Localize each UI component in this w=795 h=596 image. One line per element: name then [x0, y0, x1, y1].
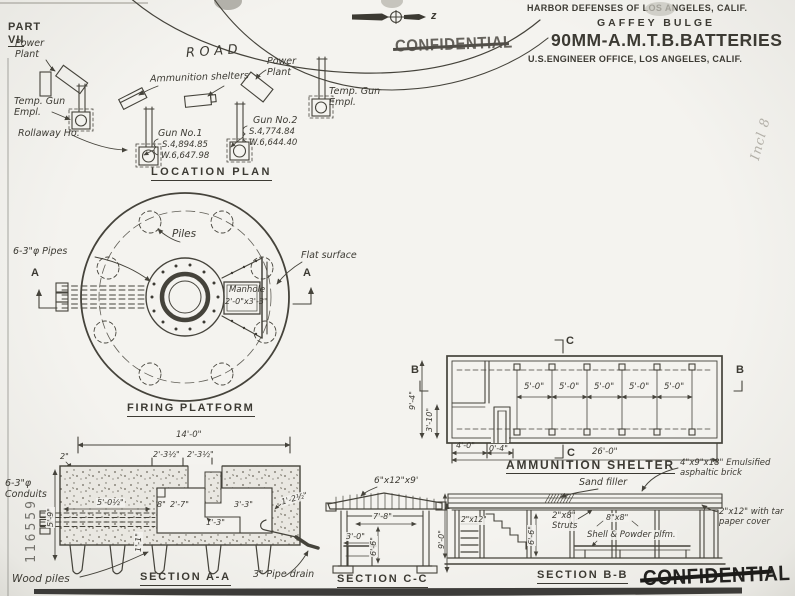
gun1-name: Gun No.1 [158, 128, 202, 139]
bb-platform-label: Shell & Powder plfm. [586, 530, 677, 540]
aa-dim-ledge: 8" [157, 500, 166, 509]
aa-dim-depth: 5'-9" [46, 507, 55, 528]
aa-dim-pit-right: 3'-3" [234, 500, 253, 509]
shelter-bay-dim-4: 5'-0" [629, 382, 649, 392]
temp-gun-right-label: Temp. Gun Empl. [329, 86, 380, 108]
header-line2: GAFFEY BULGE [597, 17, 715, 29]
shelter-dim-entry: 4'-0" [456, 441, 475, 450]
gun1-w-coord: W.6,647.98 [161, 151, 209, 161]
aa-dim-slab: 5'-0½" [96, 498, 125, 507]
shelter-dim-door: 0'-4" [489, 444, 508, 453]
shelter-bay-dim-5: 5'-0" [664, 382, 684, 392]
header-line3: 90MM-A.M.T.B.BATTERIES [551, 30, 782, 51]
section-marker-a-right: A [303, 267, 311, 280]
compass-z-label: z [431, 10, 437, 23]
manhole-dim: 2'-0"x3'-3" [225, 297, 268, 306]
cc-dim-interior: 6'-6" [369, 536, 378, 557]
section-cc-linework [326, 487, 447, 573]
pipe-drain-label: 3" Pipe drain [253, 569, 314, 580]
flat-surface-label: Flat surface [301, 250, 357, 261]
serial-number-stamp: 116559 [24, 498, 39, 563]
bb-tar-note: 2"x12" with tar paper cover [719, 507, 784, 527]
aa-dim-left-half: 2'-3½" [153, 450, 180, 459]
gun2-s-coord: S.4,774.84 [249, 127, 295, 137]
section-marker-a-left: A [31, 267, 39, 280]
bb-dim-interior: 6'-6" [527, 525, 536, 546]
bb-shelf-label: 2"x12" [460, 516, 488, 525]
gun2-name: Gun No.2 [253, 115, 297, 126]
cc-dim-width: 7'-8" [372, 512, 393, 521]
gun1-s-coord: S.4,894.85 [162, 140, 208, 150]
aa-dim-pit-left: 2'-7" [170, 500, 189, 509]
shelter-bay-dim-3: 5'-0" [594, 382, 614, 392]
aa-dim-width: 14'-0" [176, 430, 202, 440]
shelter-dim-length: 26'-0" [592, 447, 618, 457]
header-line4: U.S.ENGINEER OFFICE, LOS ANGELES, CALIF. [528, 54, 742, 65]
section-bb-title: SECTION B-B [537, 569, 628, 584]
cc-beam-label: 6"x12"x9' [374, 476, 418, 487]
aa-dim-step: 1'-3" [206, 518, 225, 527]
pipes-label: 6-3"φ Pipes [13, 246, 67, 257]
shelter-bay-dim-1: 5'-0" [524, 382, 544, 392]
wood-piles-label: Wood piles [12, 573, 70, 585]
header-line1: HARBOR DEFENSES OF LOS ANGELES, CALIF. [527, 3, 747, 14]
cc-dim-height: 9'-0" [437, 530, 446, 549]
section-mark-b-right: B [736, 364, 744, 377]
firing-platform-title: FIRING PLATFORM [127, 402, 255, 417]
part-word: PART [8, 21, 41, 33]
aa-dim-edge: 2" [60, 452, 69, 461]
section-aa-title: SECTION A-A [140, 571, 231, 586]
conduits-label: 6-3"φ Conduits [5, 478, 47, 500]
temp-gun-left-label: Temp. Gun Empl. [14, 96, 65, 118]
firing-platform-linework [39, 193, 311, 401]
section-cc-title: SECTION C-C [337, 573, 428, 588]
power-plant-left-label: Power Plant [15, 38, 44, 60]
shelter-dim-lower: 3'-10" [425, 408, 434, 432]
shelter-dim-height: 9'-4" [408, 391, 417, 410]
piles-label: Piles [172, 228, 196, 240]
ammunition-shelter-title: AMMUNITION SHELTER [506, 458, 675, 474]
north-arrow [352, 11, 426, 24]
aa-dim-base: 1'-1" [134, 532, 143, 553]
location-plan-title: LOCATION PLAN [151, 166, 272, 181]
drawing-sheet: HARBOR DEFENSES OF LOS ANGELES, CALIF. G… [0, 0, 795, 596]
sand-filler-label: Sand filler [579, 477, 627, 488]
cc-dim-bench: 3'-0" [345, 532, 366, 541]
aa-dim-right-half: 2'-3½" [187, 450, 214, 459]
bb-struts-label: 2"x8" Struts [551, 511, 578, 531]
manhole-label: Manhole [229, 285, 265, 295]
power-plant-right-label: Power Plant [267, 56, 296, 78]
gun2-w-coord: W.6,644.40 [249, 138, 297, 148]
shelter-bay-dim-2: 5'-0" [559, 382, 579, 392]
section-mark-b-left: B [411, 364, 419, 377]
bb-brick-note: 4"x9"x18" Emulsified asphaltic brick [680, 458, 770, 478]
section-mark-c-top: C [566, 335, 574, 348]
scan-smudge [645, 2, 675, 16]
bb-post-label: 8"x8" [605, 513, 629, 522]
rollaway-house-label: Rollaway Ho. [18, 128, 80, 139]
